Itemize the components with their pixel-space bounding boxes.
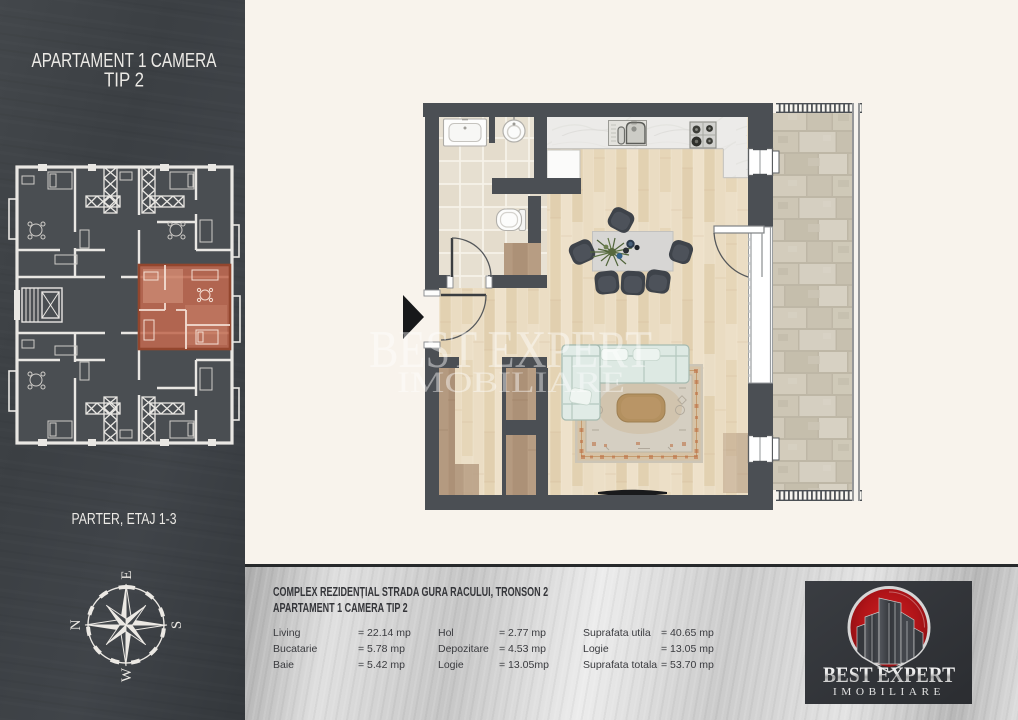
svg-text:E: E xyxy=(119,570,135,579)
svg-text:W: W xyxy=(119,667,135,682)
svg-text:IMOBILIARE: IMOBILIARE xyxy=(833,687,945,698)
svg-text:BEST EXPERT: BEST EXPERT xyxy=(823,662,955,687)
svg-text:TIP 2: TIP 2 xyxy=(104,69,144,92)
svg-text:N: N xyxy=(68,619,84,630)
svg-text:S: S xyxy=(169,621,185,629)
svg-text:IMOBILIARE: IMOBILIARE xyxy=(397,366,625,399)
svg-text:PARTER, ETAJ 1-3: PARTER, ETAJ 1-3 xyxy=(72,511,177,528)
